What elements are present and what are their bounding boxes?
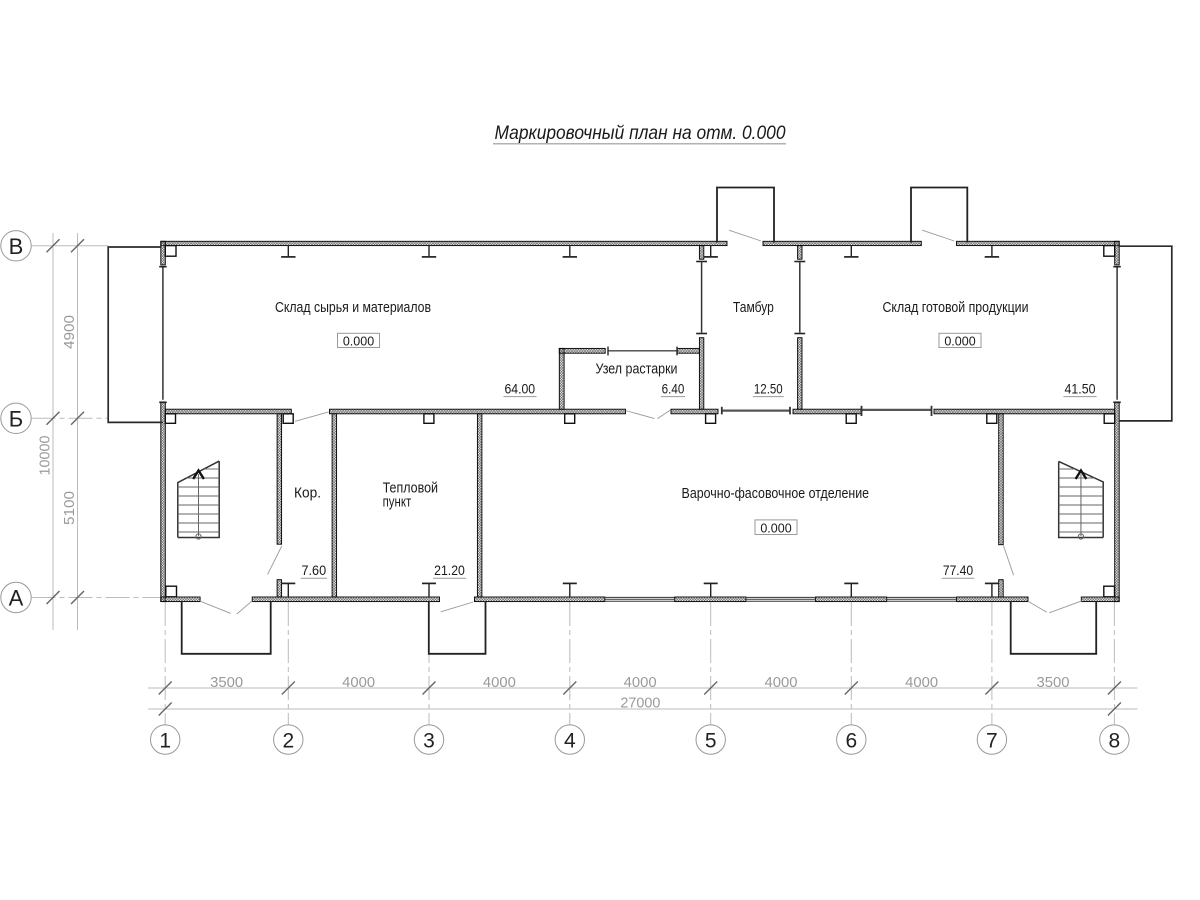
svg-text:3500: 3500 [1037,675,1070,691]
svg-text:7: 7 [986,729,998,752]
svg-text:0.000: 0.000 [343,335,374,349]
svg-text:4: 4 [564,729,576,752]
svg-text:Склад готовой продукции: Склад готовой продукции [883,300,1029,316]
svg-text:В: В [9,234,24,259]
svg-text:Маркировочный план на отм. 0.0: Маркировочный план на отм. 0.000 [495,122,786,144]
svg-text:10000: 10000 [38,435,54,475]
svg-text:Тамбур: Тамбур [733,300,774,316]
svg-text:41.50: 41.50 [1065,380,1096,396]
svg-text:3: 3 [423,729,435,752]
svg-text:Склад сырья и материалов: Склад сырья и материалов [275,300,431,316]
svg-text:77.40: 77.40 [943,562,973,578]
svg-text:64.00: 64.00 [504,380,535,396]
svg-text:4000: 4000 [765,675,798,691]
svg-text:8: 8 [1109,729,1121,752]
svg-text:Б: Б [9,406,23,431]
svg-text:4000: 4000 [483,675,516,691]
svg-text:5100: 5100 [62,491,78,525]
svg-text:6: 6 [845,729,857,752]
svg-text:А: А [9,586,24,611]
svg-text:7.60: 7.60 [302,562,327,578]
svg-text:0.000: 0.000 [944,335,975,349]
svg-text:Варочно-фасовочное отделение: Варочно-фасовочное отделение [682,486,870,502]
svg-text:4000: 4000 [905,675,938,691]
svg-text:1: 1 [159,729,171,752]
svg-text:2: 2 [282,729,294,752]
svg-text:5: 5 [705,729,717,752]
svg-text:0.000: 0.000 [760,521,791,535]
svg-text:27000: 27000 [620,695,660,711]
svg-text:4000: 4000 [342,675,375,691]
svg-text:4000: 4000 [624,675,657,691]
svg-text:Кор.: Кор. [294,486,321,502]
svg-text:Узел растарки: Узел растарки [596,362,678,378]
svg-text:21.20: 21.20 [434,562,465,578]
svg-text:3500: 3500 [210,675,243,691]
svg-text:12.50: 12.50 [754,380,783,396]
svg-text:пункт: пункт [383,495,412,511]
svg-text:4900: 4900 [62,315,78,349]
svg-text:6.40: 6.40 [662,380,685,396]
